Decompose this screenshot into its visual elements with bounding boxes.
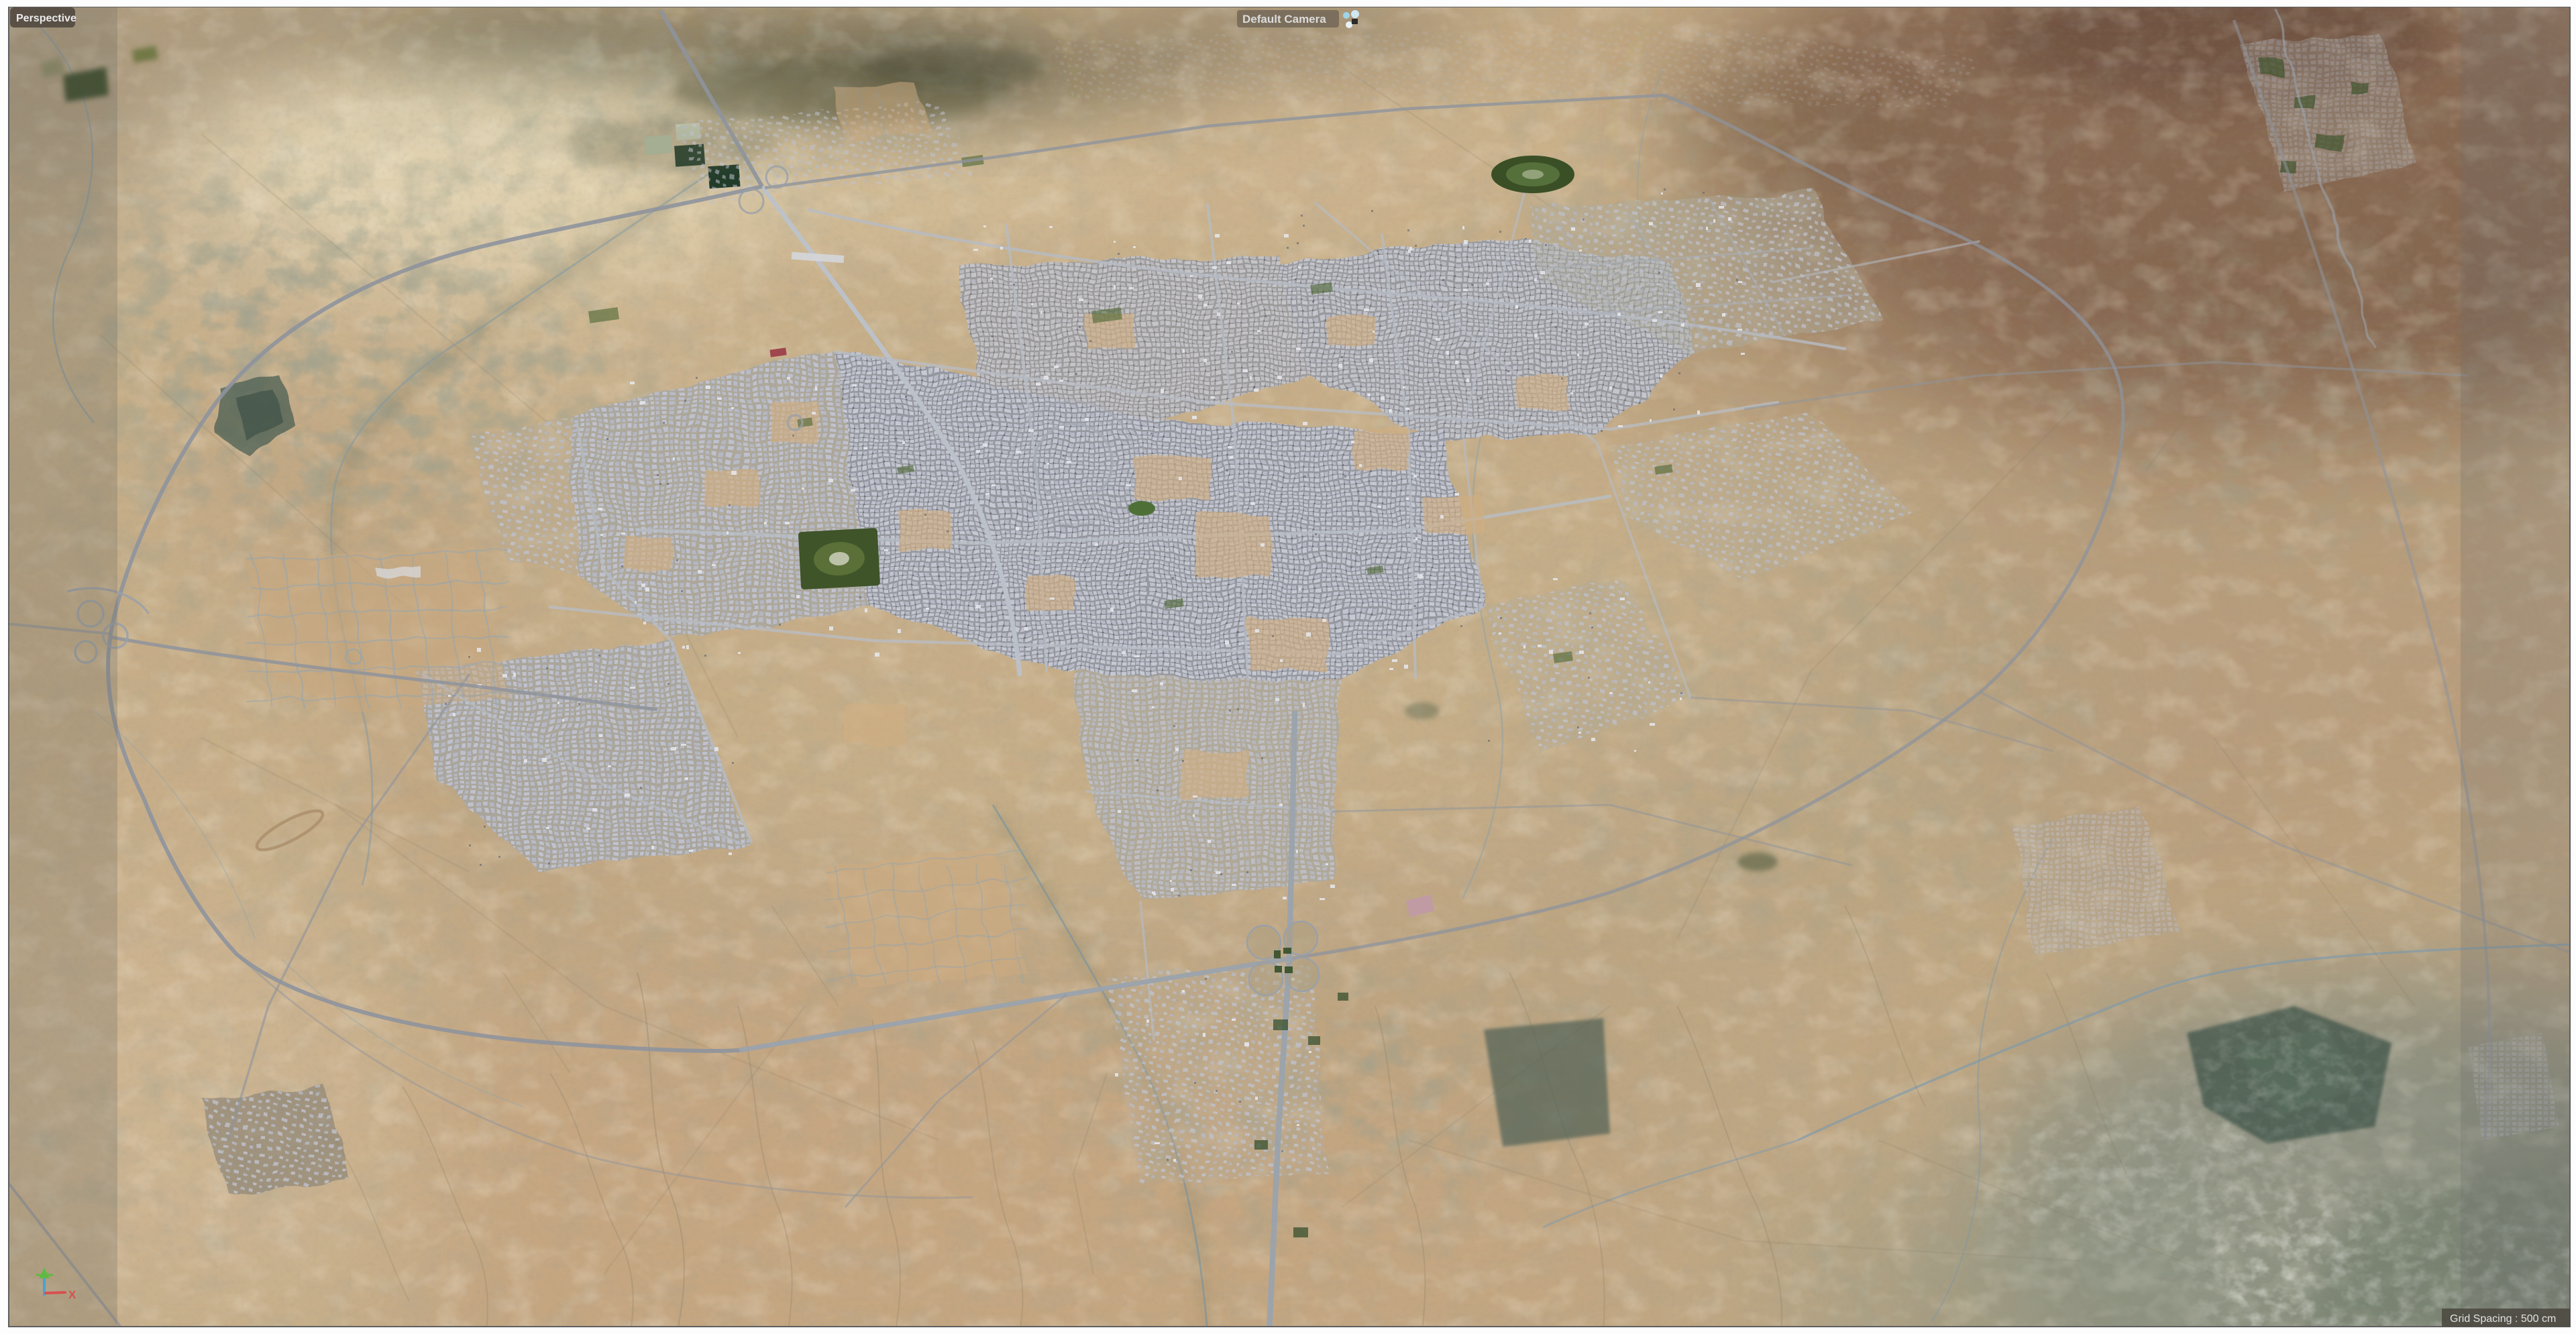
svg-text:Perspective: Perspective [16, 13, 76, 24]
svg-text:Grid Spacing : 500 cm: Grid Spacing : 500 cm [2450, 1313, 2556, 1325]
svg-text:Default Camera: Default Camera [1242, 13, 1326, 25]
svg-text:X: X [68, 1288, 76, 1301]
